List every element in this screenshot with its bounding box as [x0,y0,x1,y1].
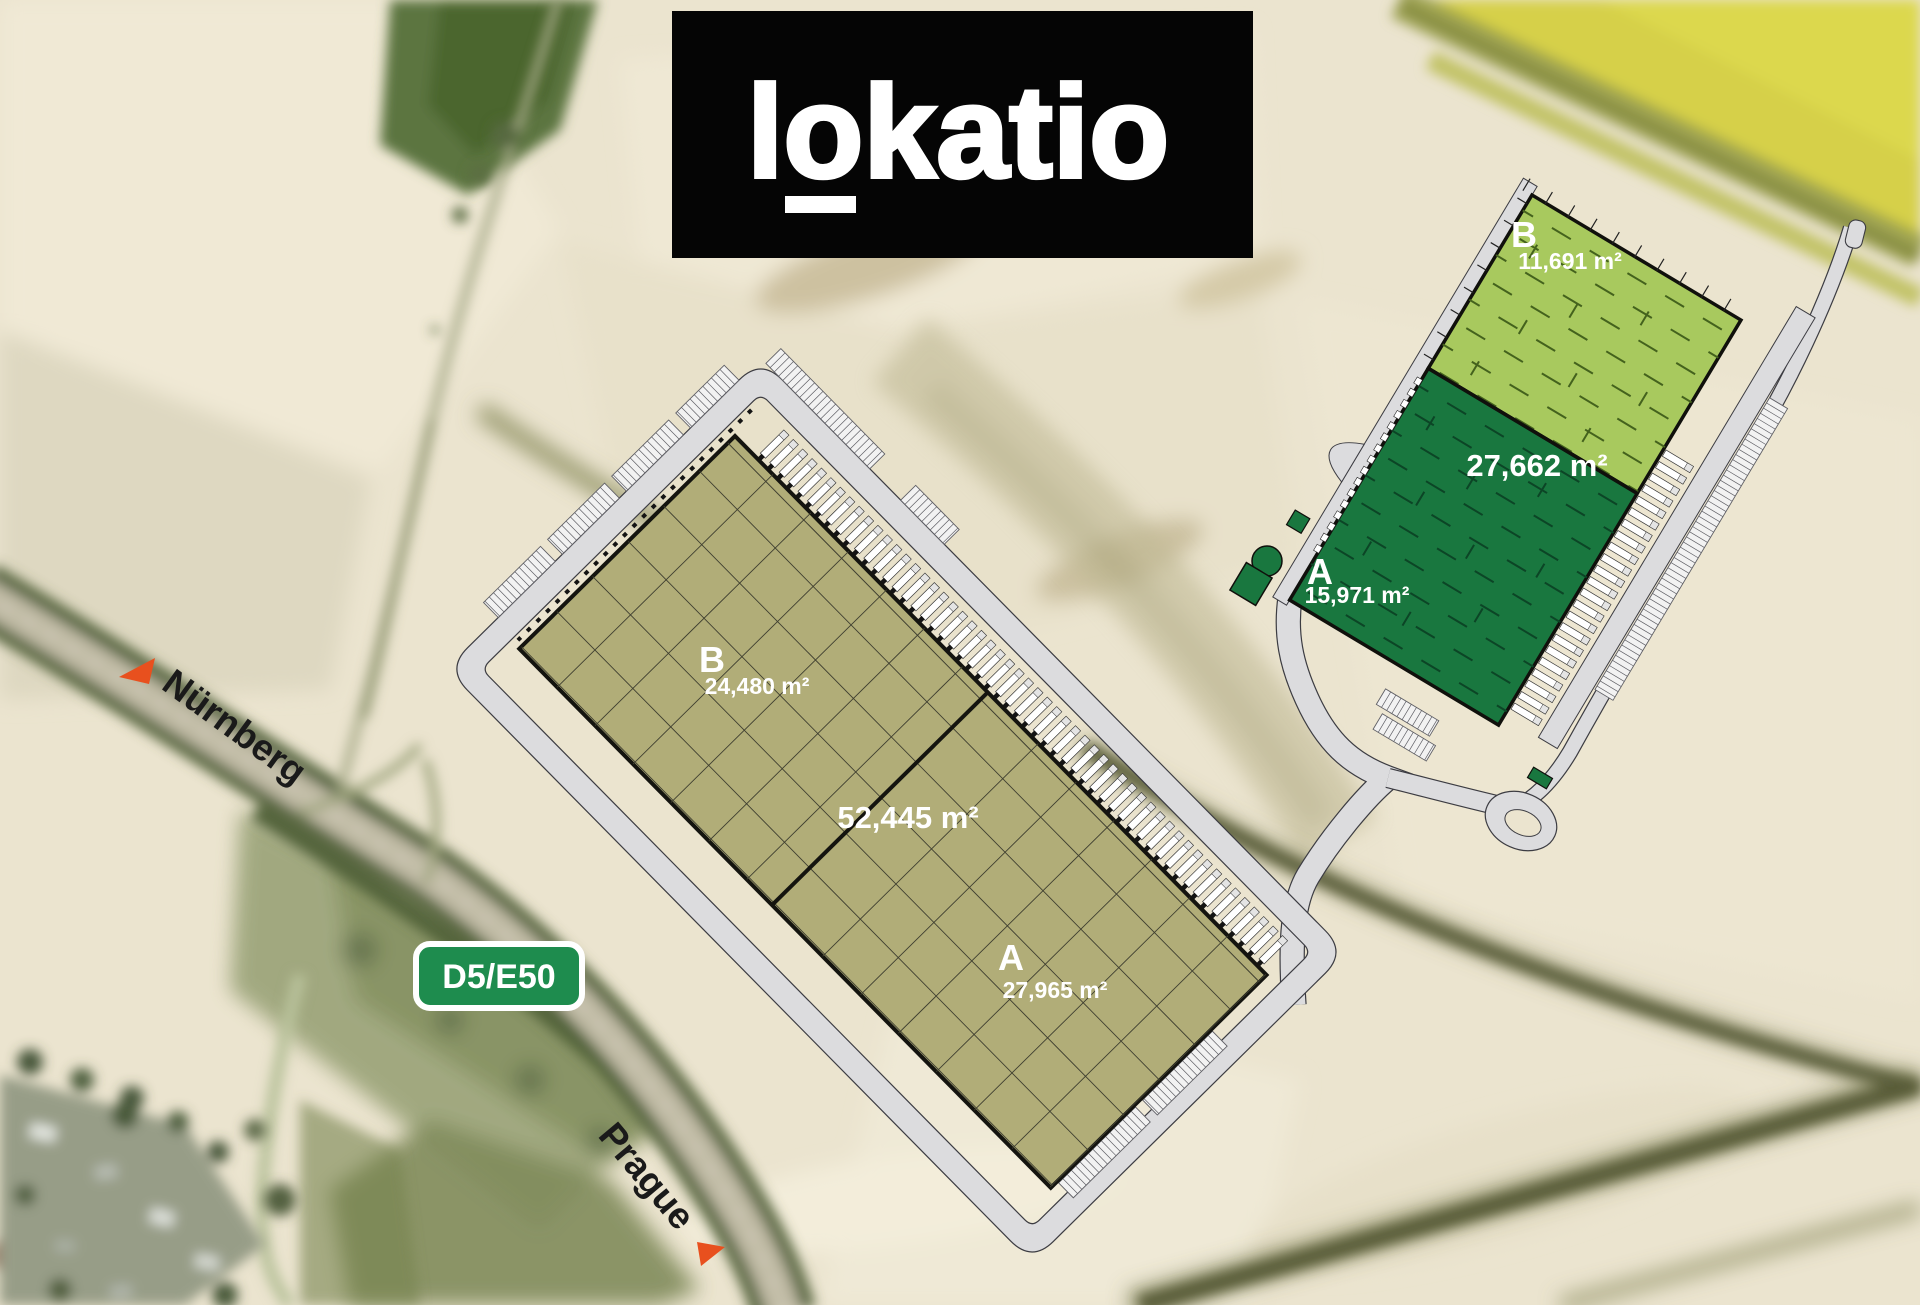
svg-text:24,480 m²: 24,480 m² [705,673,810,699]
svg-text:27,965 m²: 27,965 m² [1003,977,1108,1003]
svg-text:11,691 m²: 11,691 m² [1518,248,1622,274]
svg-text:27,662 m²: 27,662 m² [1466,448,1607,483]
svg-text:52,445 m²: 52,445 m² [837,800,978,835]
svg-text:A: A [998,937,1024,978]
svg-text:D5/E50: D5/E50 [442,958,555,996]
svg-text:15,971 m²: 15,971 m² [1305,582,1410,608]
svg-text:lokatio: lokatio [747,58,1169,205]
